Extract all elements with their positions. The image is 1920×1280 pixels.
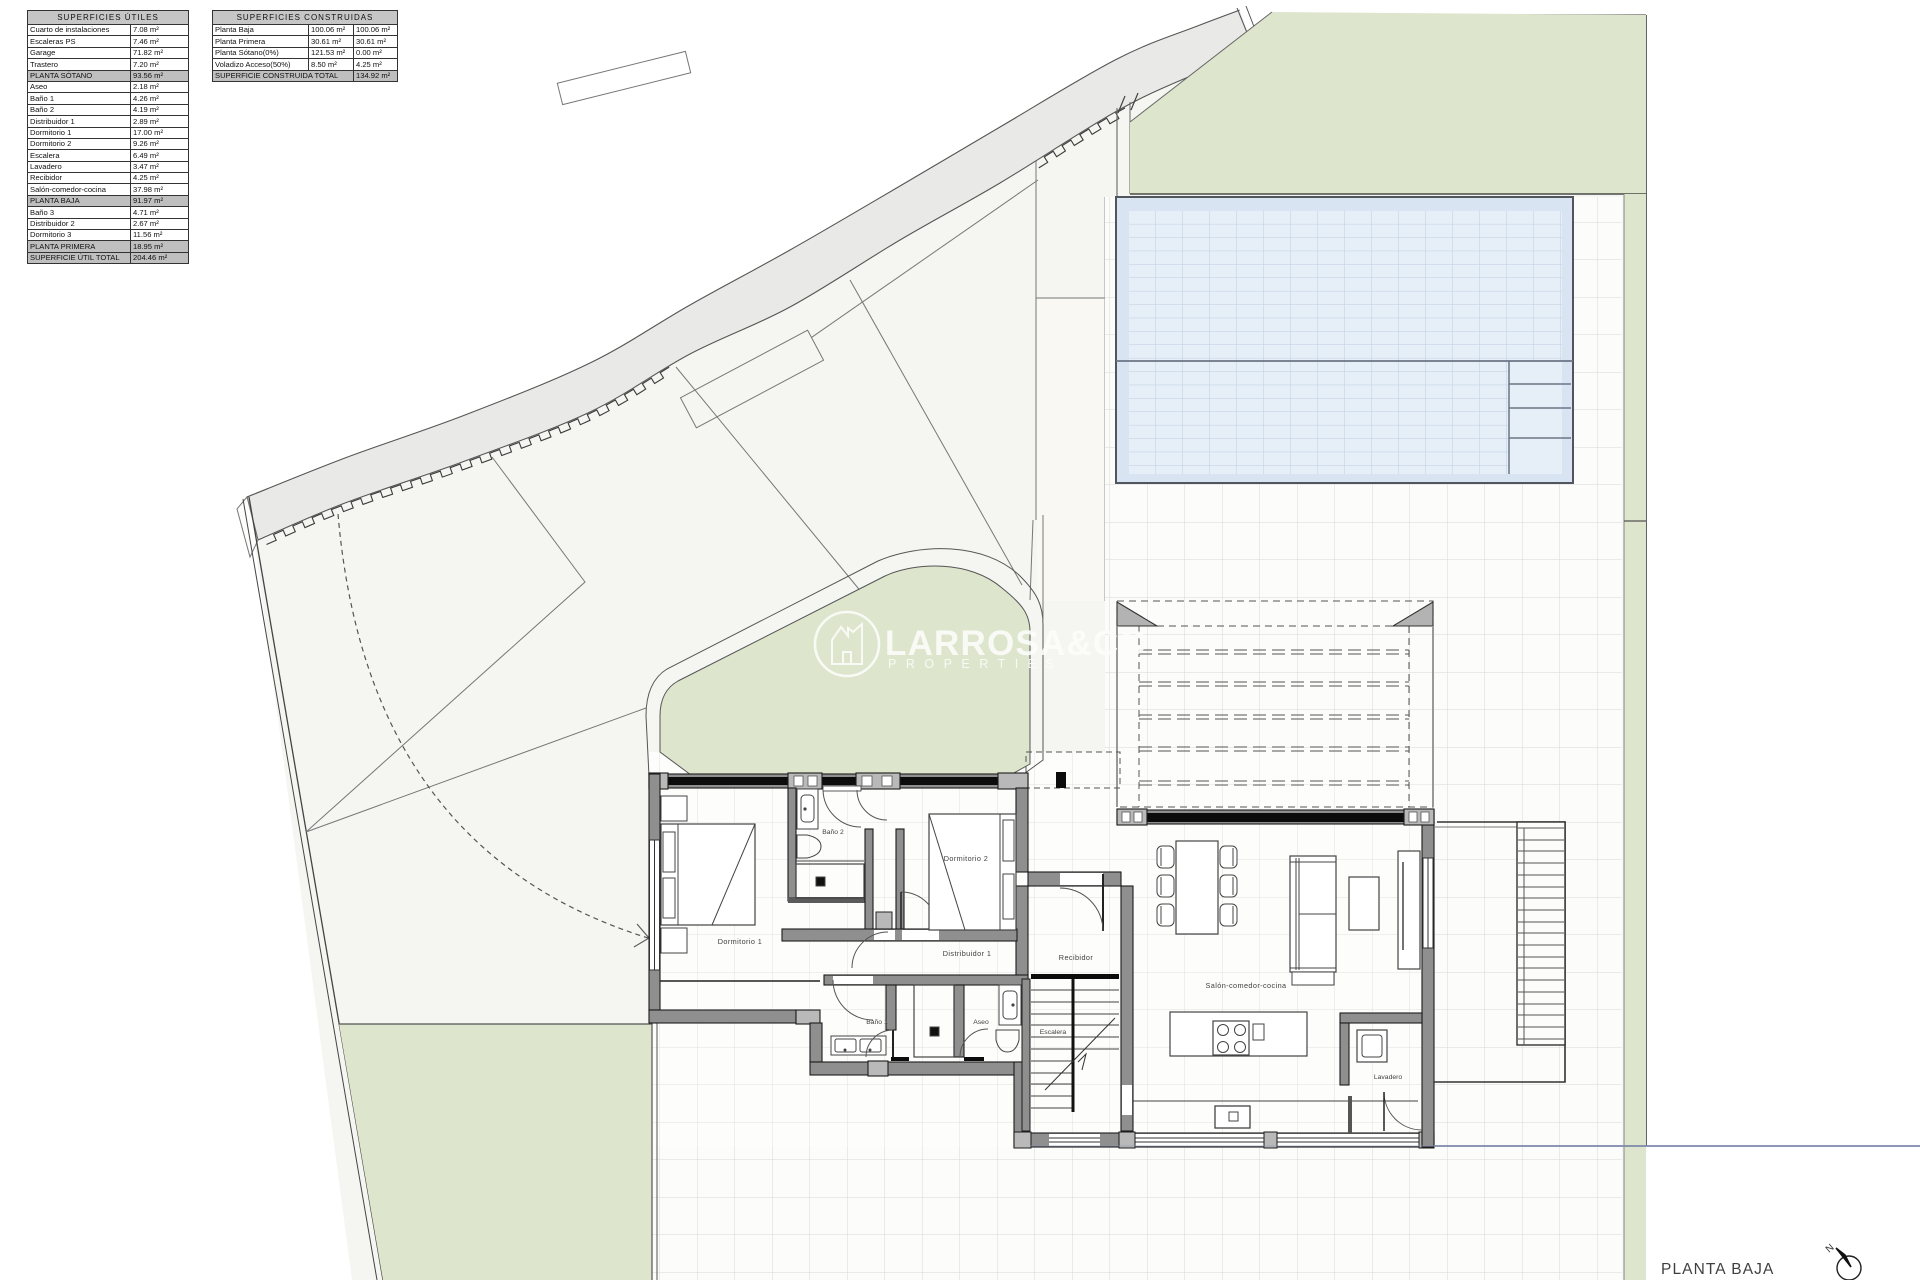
svg-text:Recibidor: Recibidor <box>1059 953 1094 962</box>
svg-text:PROPERTIES: PROPERTIES <box>888 657 1063 671</box>
svg-text:Salón-comedor-cocina: Salón-comedor-cocina <box>1205 981 1287 990</box>
svg-text:Dormitorio 1: Dormitorio 1 <box>718 937 763 946</box>
svg-text:PLANTA BAJA: PLANTA BAJA <box>1661 1261 1774 1278</box>
svg-text:Lavadero: Lavadero <box>1374 1074 1403 1081</box>
svg-text:N: N <box>1824 1242 1837 1255</box>
svg-text:Distribuidor 1: Distribuidor 1 <box>943 949 992 958</box>
svg-text:Escalera: Escalera <box>1040 1029 1067 1036</box>
svg-text:Aseo: Aseo <box>973 1019 989 1026</box>
svg-text:Baño 1: Baño 1 <box>866 1019 888 1026</box>
svg-text:Baño 2: Baño 2 <box>822 829 844 836</box>
svg-text:Dormitorio 2: Dormitorio 2 <box>944 854 989 863</box>
